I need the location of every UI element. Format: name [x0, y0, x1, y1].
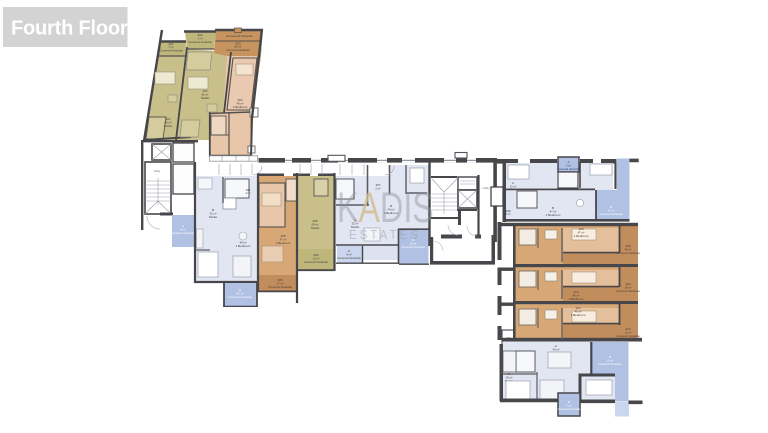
- svg-text:1 Bedroom: 1 Bedroom: [571, 313, 586, 317]
- svg-text:Covered Veranda: Covered Veranda: [616, 289, 640, 293]
- svg-text:412: 412: [575, 306, 580, 310]
- svg-text:Covered Veranda: Covered Veranda: [401, 245, 425, 249]
- svg-text:Fourth Floor: Fourth Floor: [11, 18, 128, 40]
- svg-text:B: B: [212, 208, 214, 212]
- svg-text:1 Bedroom: 1 Bedroom: [546, 213, 561, 217]
- svg-text:1 Bedroom: 1 Bedroom: [236, 244, 251, 248]
- svg-text:A: A: [182, 224, 184, 228]
- svg-text:Studio: Studio: [201, 96, 210, 100]
- svg-text:406: 406: [312, 219, 317, 223]
- svg-text:B: B: [568, 400, 570, 404]
- svg-text:Covered Veranda: Covered Veranda: [171, 231, 195, 235]
- svg-text:Uncovered Veranda: Uncovered Veranda: [226, 34, 253, 38]
- svg-text:1 Bedroom: 1 Bedroom: [574, 234, 589, 238]
- svg-text:5 m²: 5 m²: [506, 213, 511, 216]
- svg-text:Studio: Studio: [311, 226, 320, 230]
- svg-text:Covered Veranda: Covered Veranda: [159, 48, 183, 52]
- svg-text:1 Bedroom: 1 Bedroom: [569, 297, 584, 301]
- svg-text:A: A: [555, 344, 557, 348]
- svg-text:1 Bedroom: 1 Bedroom: [276, 241, 291, 245]
- svg-text:Lobby: Lobby: [154, 170, 161, 173]
- svg-text:408: 408: [625, 244, 630, 248]
- svg-text:A: A: [348, 249, 350, 253]
- svg-text:Covered Veranda: Covered Veranda: [268, 285, 292, 289]
- svg-text:405: 405: [277, 278, 282, 282]
- svg-text:KADIS: KADIS: [337, 185, 434, 233]
- svg-text:Covered Veranda: Covered Veranda: [337, 256, 361, 260]
- svg-text:Covered Veranda: Covered Veranda: [188, 40, 212, 44]
- svg-text:B: B: [552, 206, 554, 210]
- svg-text:403: 403: [237, 98, 242, 102]
- svg-text:408: 408: [578, 227, 583, 231]
- svg-text:Studio: Studio: [209, 215, 218, 219]
- svg-text:Covered Veranda: Covered Veranda: [558, 407, 580, 411]
- svg-text:402: 402: [202, 89, 207, 93]
- svg-text:405: 405: [280, 234, 285, 238]
- svg-text:412: 412: [625, 327, 630, 331]
- svg-text:Covered Veranda: Covered Veranda: [599, 212, 623, 216]
- svg-text:2 m²: 2 m²: [246, 192, 251, 195]
- svg-text:Covered Veranda: Covered Veranda: [616, 334, 640, 338]
- svg-text:401: 401: [165, 117, 170, 121]
- svg-text:Studio: Studio: [164, 124, 173, 128]
- svg-text:Lobby: Lobby: [482, 186, 490, 190]
- svg-text:Covered Veranda: Covered Veranda: [228, 295, 252, 299]
- svg-text:Covered Veranda: Covered Veranda: [598, 362, 622, 366]
- svg-text:410: 410: [625, 282, 630, 286]
- svg-text:Covered Veranda: Covered Veranda: [558, 167, 580, 171]
- svg-text:Covered Veranda: Covered Veranda: [304, 260, 328, 264]
- svg-text:B: B: [239, 288, 241, 292]
- svg-text:A: A: [568, 160, 570, 164]
- svg-text:A: A: [512, 181, 514, 185]
- svg-text:Covered Veranda: Covered Veranda: [226, 48, 250, 52]
- svg-text:1 Bedroom: 1 Bedroom: [233, 105, 248, 109]
- svg-text:410: 410: [573, 290, 578, 294]
- svg-text:B: B: [610, 205, 612, 209]
- svg-text:10 m²: 10 m²: [510, 185, 517, 189]
- svg-text:B: B: [609, 355, 611, 359]
- svg-text:406: 406: [313, 253, 318, 257]
- svg-text:E S T A T E S: E S T A T E S: [349, 227, 418, 242]
